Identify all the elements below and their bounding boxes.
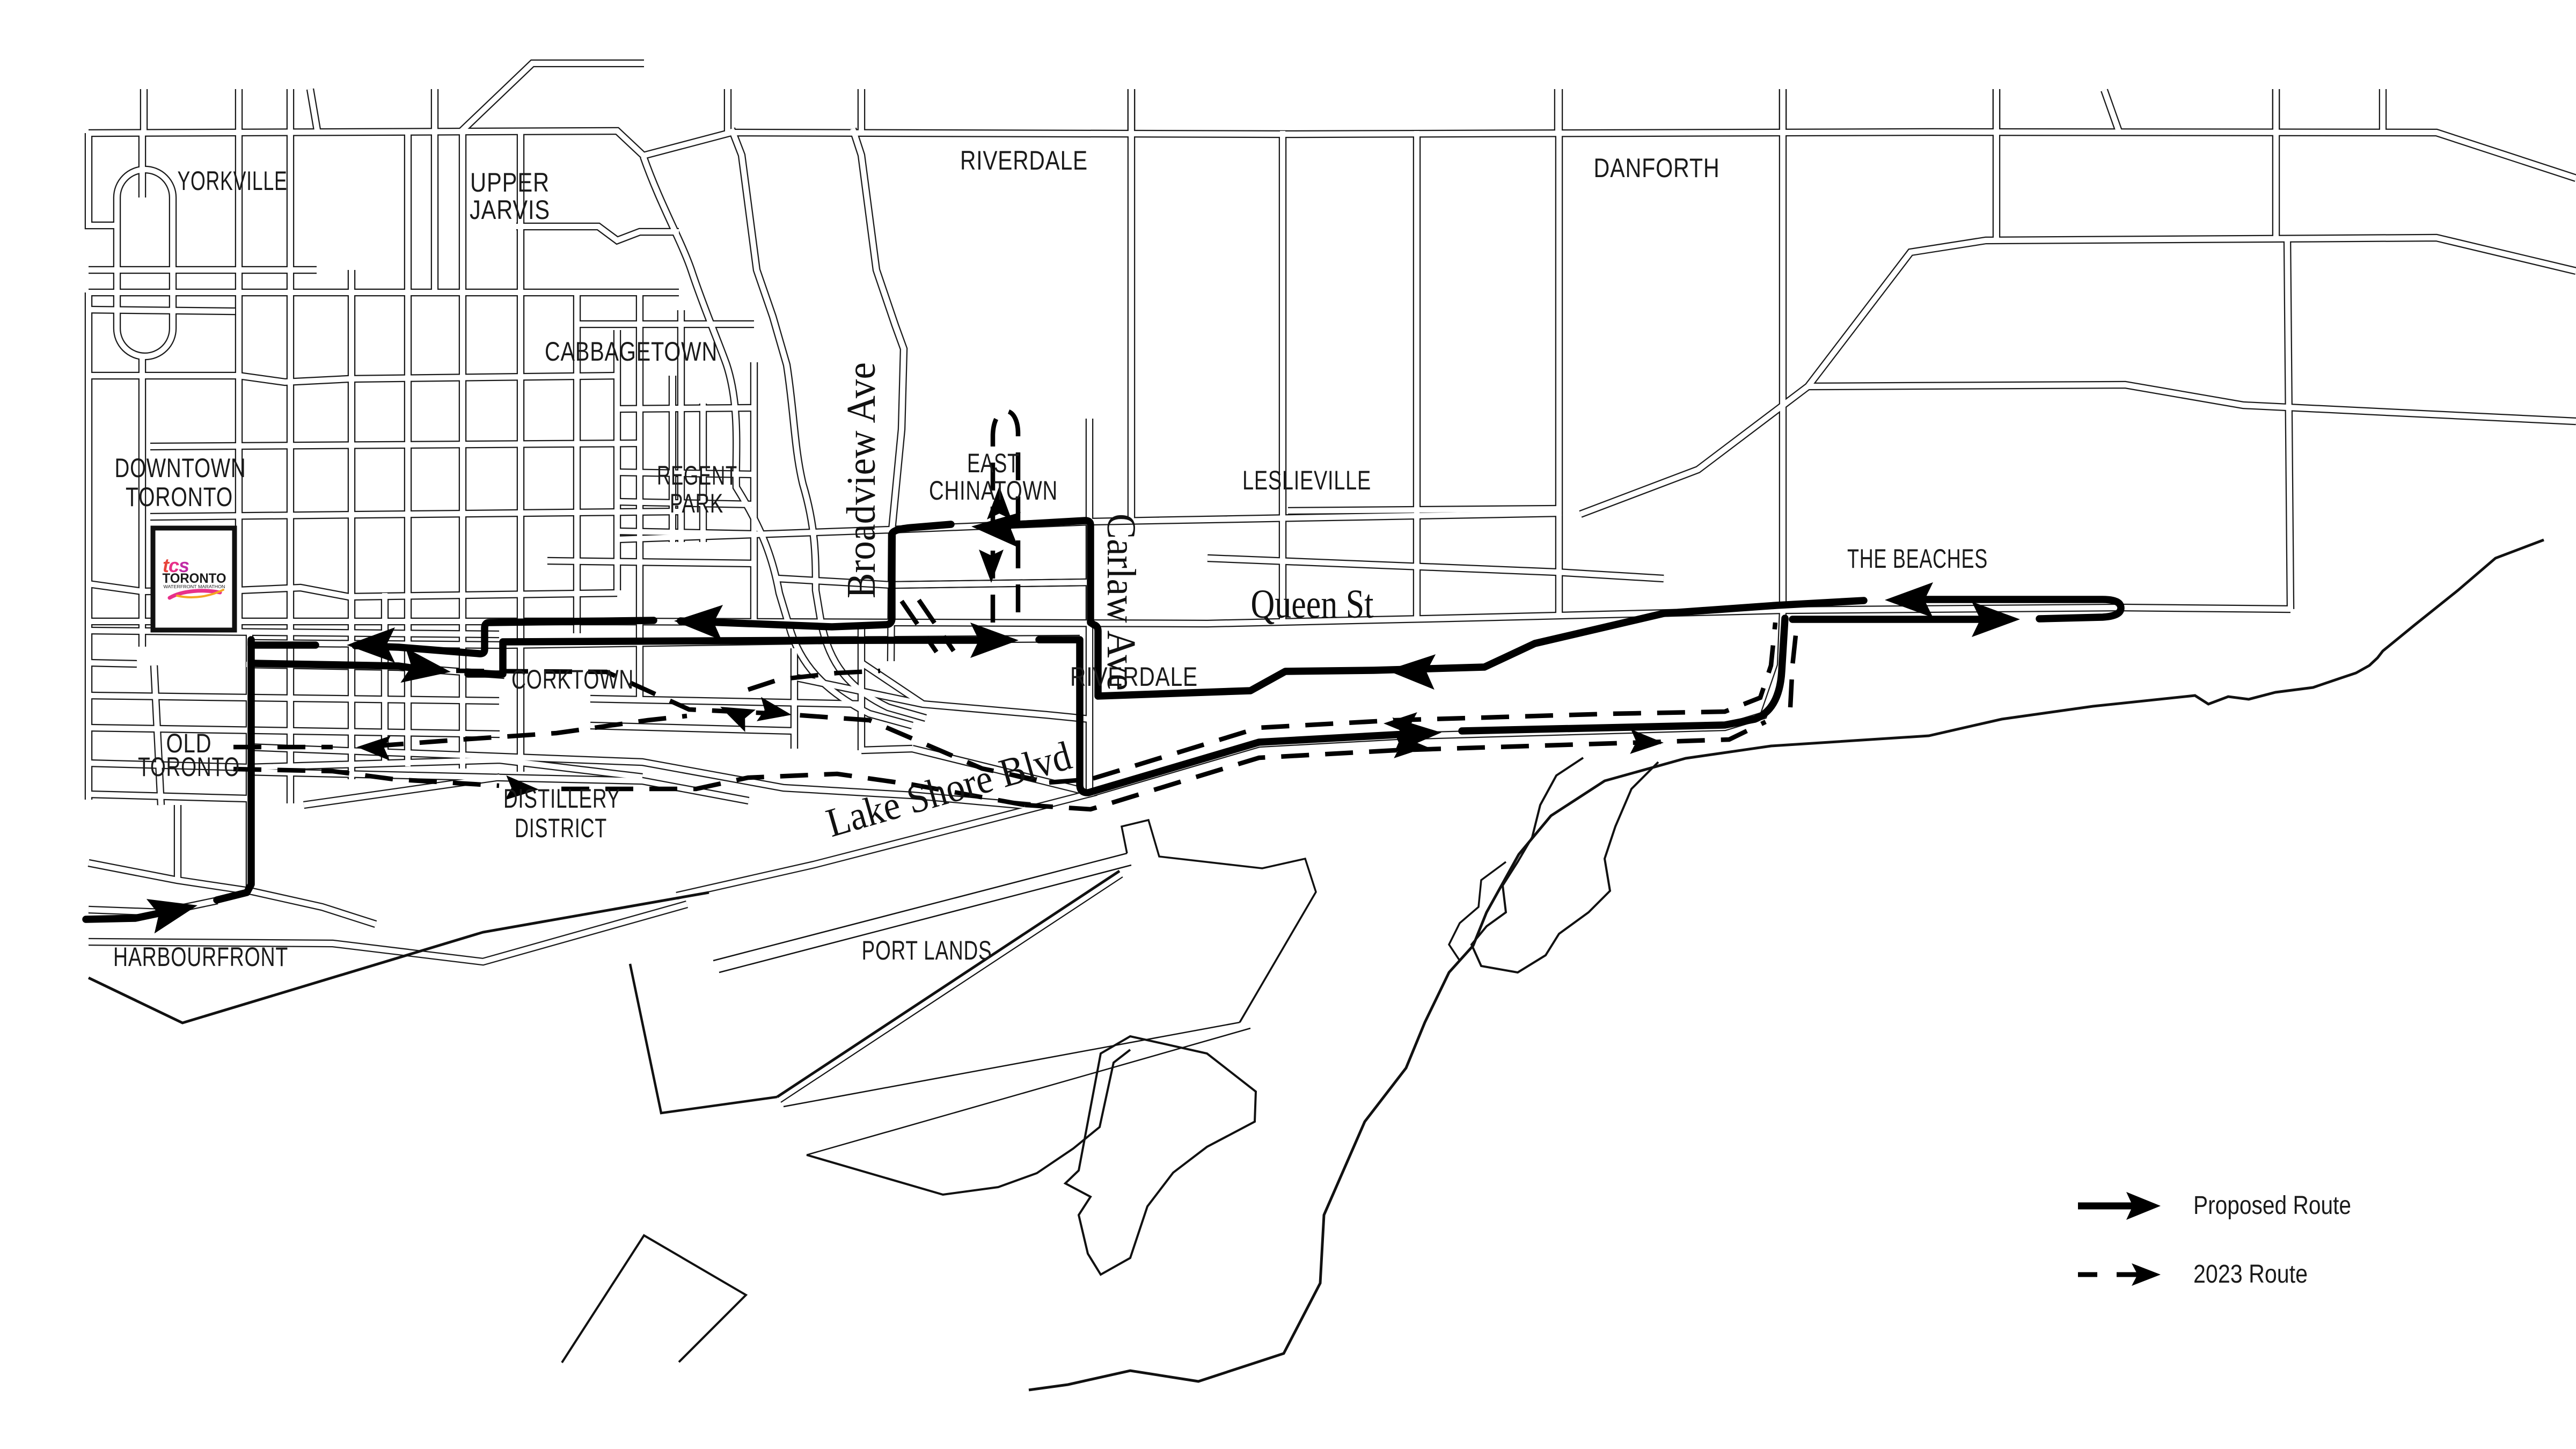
- svg-text:PARK: PARK: [670, 488, 723, 518]
- svg-text:TORONTO: TORONTO: [126, 482, 233, 512]
- svg-text:THE BEACHES: THE BEACHES: [1847, 544, 1988, 574]
- svg-text:JARVIS: JARVIS: [470, 195, 550, 225]
- svg-text:YORKVILLE: YORKVILLE: [178, 166, 288, 196]
- svg-text:Queen St: Queen St: [1251, 582, 1374, 627]
- svg-text:DANFORTH: DANFORTH: [1594, 153, 1720, 183]
- svg-text:RIVERDALE: RIVERDALE: [960, 145, 1088, 175]
- svg-text:TORONTO: TORONTO: [163, 571, 226, 586]
- svg-text:CORKTOWN: CORKTOWN: [511, 664, 634, 694]
- svg-text:DOWNTOWN: DOWNTOWN: [115, 453, 246, 483]
- svg-text:Carlaw Ave: Carlaw Ave: [1099, 514, 1144, 691]
- svg-text:CABBAGETOWN: CABBAGETOWN: [545, 336, 718, 367]
- svg-text:WATERFRONT MARATHON: WATERFRONT MARATHON: [164, 584, 225, 589]
- svg-text:HARBOURFRONT: HARBOURFRONT: [113, 942, 288, 972]
- svg-text:REGENT: REGENT: [657, 460, 737, 491]
- svg-text:EAST: EAST: [967, 448, 1020, 478]
- svg-text:PORT LANDS: PORT LANDS: [862, 935, 992, 965]
- svg-text:DISTRICT: DISTRICT: [515, 813, 607, 843]
- svg-text:CHINATOWN: CHINATOWN: [929, 475, 1058, 506]
- svg-text:Broadview Ave: Broadview Ave: [839, 362, 884, 598]
- svg-text:TORONTO: TORONTO: [138, 752, 240, 782]
- svg-text:UPPER: UPPER: [470, 167, 550, 197]
- svg-text:DISTILLERY: DISTILLERY: [503, 784, 620, 814]
- svg-text:Proposed Route: Proposed Route: [2193, 1191, 2351, 1220]
- svg-text:2023 Route: 2023 Route: [2193, 1260, 2308, 1289]
- svg-text:LESLIEVILLE: LESLIEVILLE: [1242, 465, 1371, 495]
